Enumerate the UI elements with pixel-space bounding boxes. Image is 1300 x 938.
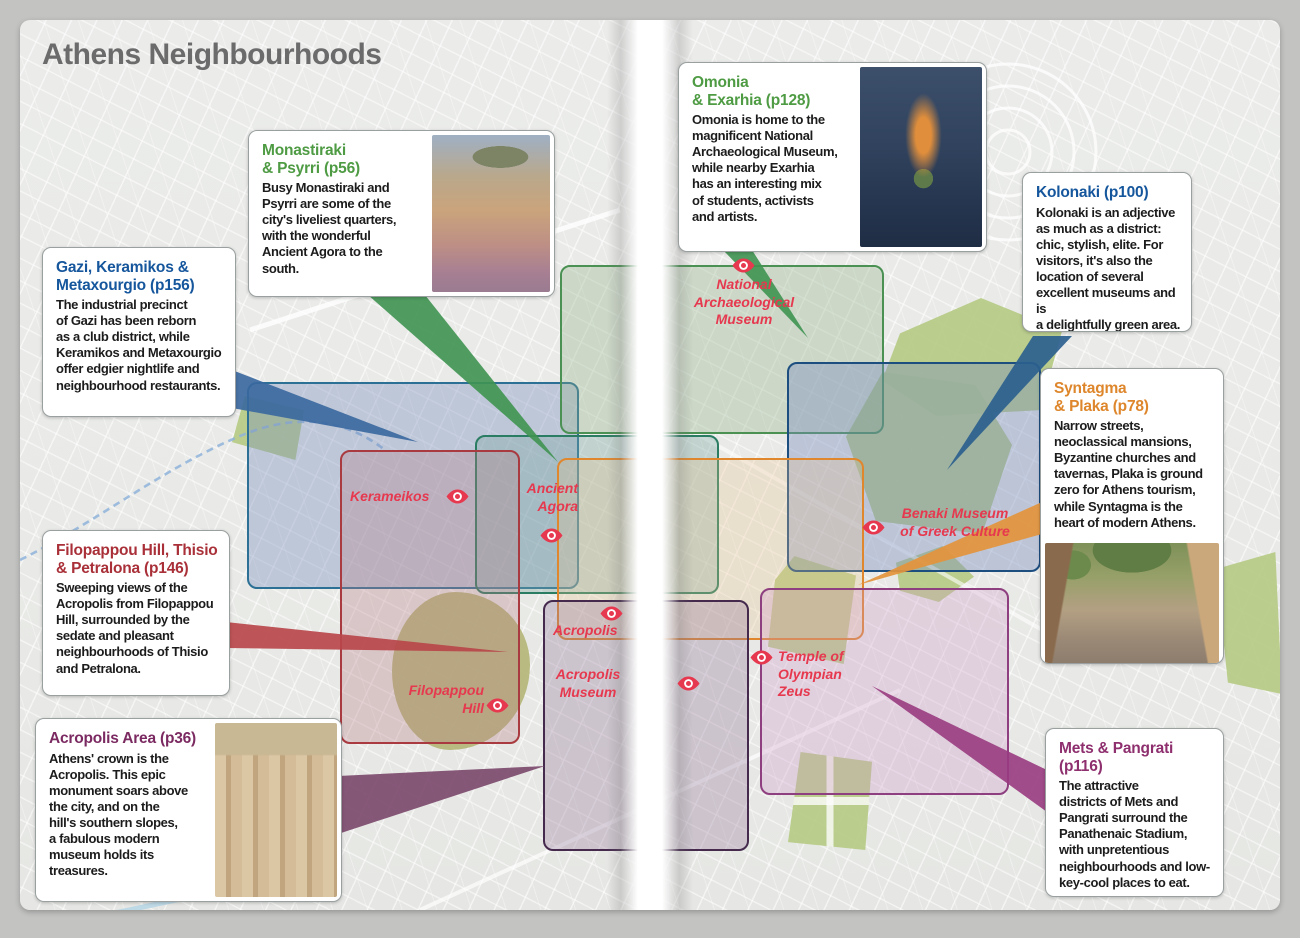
sight-eye-icon-national-museum: [732, 258, 755, 273]
label-acropolis-museum: Acropolis Museum: [546, 666, 630, 701]
callout-body: Sweeping views of the Acropolis from Fil…: [56, 580, 219, 677]
wedge-filopappou: [226, 622, 508, 652]
callout-heading: Syntagma & Plaka (p78): [1054, 380, 1213, 415]
callout-syntagma-plaka: Syntagma & Plaka (p78) Narrow streets, n…: [1040, 368, 1224, 664]
callout-text-block: Syntagma & Plaka (p78) Narrow streets, n…: [1041, 369, 1223, 539]
omonia-photo: [860, 67, 982, 247]
plaka-street-photo: [1045, 543, 1219, 664]
callout-acropolis-area: Acropolis Area (p36) Athens' crown is th…: [35, 718, 342, 902]
callout-heading: Mets & Pangrati (p116): [1059, 740, 1213, 775]
callout-body: Busy Monastiraki and Psyrri are some of …: [262, 180, 418, 277]
callout-body: The attractive districts of Mets and Pan…: [1059, 778, 1213, 891]
monastiraki-photo: [432, 135, 550, 292]
callout-kolonaki: Kolonaki (p100) Kolonaki is an adjective…: [1022, 172, 1192, 332]
callout-body: Kolonaki is an adjective as much as a di…: [1036, 205, 1181, 333]
sight-eye-icon-temple-zeus: [750, 650, 773, 665]
wedge-acropolis: [338, 766, 545, 834]
sight-eye-icon-acropolis-museum: [677, 676, 700, 691]
callout-heading: Monastiraki & Psyrri (p56): [262, 142, 418, 177]
sight-eye-icon-filopappou: [486, 698, 509, 713]
sight-eye-icon-kerameikos: [446, 489, 469, 504]
callout-filopappou-thisio-petralona: Filopappou Hill, Thisio & Petralona (p14…: [42, 530, 230, 696]
callout-heading: Kolonaki (p100): [1036, 184, 1181, 202]
callout-body: Athens' crown is the Acropolis. This epi…: [49, 751, 201, 880]
label-benaki-museum: Benaki Museum of Greek Culture: [884, 505, 1026, 540]
sight-eye-icon-benaki: [862, 520, 885, 535]
callout-heading: Gazi, Keramikos & Metaxourgio (p156): [56, 259, 225, 294]
callout-text-block: Filopappou Hill, Thisio & Petralona (p14…: [43, 531, 229, 695]
label-national-archaeological-museum: National Archaeological Museum: [666, 276, 822, 329]
callout-text-block: Acropolis Area (p36) Athens' crown is th…: [36, 719, 211, 901]
callout-heading: Omonia & Exarhia (p128): [692, 74, 846, 109]
label-acropolis: Acropolis: [553, 622, 618, 640]
callout-mets-pangrati: Mets & Pangrati (p116) The attractive di…: [1045, 728, 1224, 897]
callout-heading: Acropolis Area (p36): [49, 730, 201, 748]
page-title: Athens Neighbourhoods: [42, 38, 381, 72]
wedge-mets: [872, 686, 1047, 812]
callout-omonia-exarhia: Omonia & Exarhia (p128) Omonia is home t…: [678, 62, 987, 252]
callout-text-block: Gazi, Keramikos & Metaxourgio (p156) The…: [43, 248, 235, 416]
sight-eye-icon-ancient-agora: [540, 528, 563, 543]
callout-text-block: Monastiraki & Psyrri (p56) Busy Monastir…: [249, 131, 428, 296]
callout-text-block: Omonia & Exarhia (p128) Omonia is home t…: [679, 63, 856, 251]
wedge-gazi: [232, 370, 418, 442]
callout-body: Narrow streets, neoclassical mansions, B…: [1054, 418, 1213, 531]
callout-text-block: Mets & Pangrati (p116) The attractive di…: [1046, 729, 1223, 896]
label-ancient-agora: Ancient Agora: [498, 480, 578, 515]
athens-neighbourhoods-spread: { "page": { "title": "Athens Neighbourho…: [0, 0, 1300, 938]
callout-text-block: Kolonaki (p100) Kolonaki is an adjective…: [1023, 173, 1191, 331]
caryatids-photo: [215, 723, 337, 897]
callout-heading: Filopappou Hill, Thisio & Petralona (p14…: [56, 542, 219, 577]
label-kerameikos: Kerameikos: [350, 488, 429, 506]
label-temple-olympian-zeus: Temple of Olympian Zeus: [778, 648, 844, 701]
callout-gazi-keramikos-metaxourgio: Gazi, Keramikos & Metaxourgio (p156) The…: [42, 247, 236, 417]
callout-body: Omonia is home to the magnificent Nation…: [692, 112, 846, 225]
callout-monastiraki-psyrri: Monastiraki & Psyrri (p56) Busy Monastir…: [248, 130, 555, 297]
callout-body: The industrial precinct of Gazi has been…: [56, 297, 225, 394]
sight-eye-icon-acropolis: [600, 606, 623, 621]
label-filopappou-hill: Filopappou Hill: [396, 682, 484, 717]
